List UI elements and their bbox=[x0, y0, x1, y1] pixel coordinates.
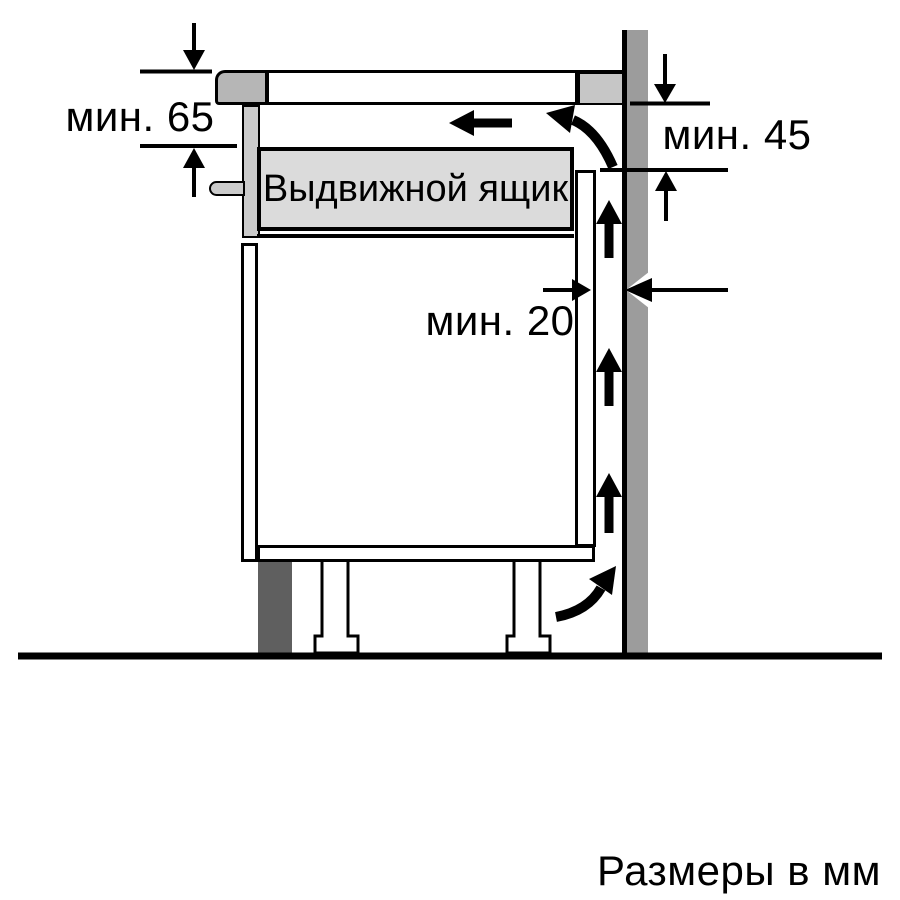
footer-note: Размеры в мм bbox=[597, 847, 881, 895]
hob-front-profile bbox=[215, 70, 268, 105]
airflow-up-arrow-icon bbox=[596, 200, 622, 258]
cabinet-back-panel bbox=[575, 170, 596, 547]
installation-diagram: Выдвижной ящик мин. 65 мин. 45 мин. 20 Р… bbox=[0, 0, 900, 900]
airflow-up-arrow-icon bbox=[596, 473, 622, 533]
worktop bbox=[266, 70, 578, 105]
cabinet-leg bbox=[507, 562, 550, 653]
dimension-arrow-down-icon bbox=[183, 50, 205, 70]
dimension-label-vent-clearance: мин. 45 bbox=[662, 111, 811, 159]
connection-tab bbox=[209, 181, 245, 196]
shelf-line bbox=[257, 234, 574, 238]
dimension-label-top-clearance: мин. 65 bbox=[65, 93, 214, 141]
drawer-box: Выдвижной ящик bbox=[257, 147, 574, 231]
cabinet-leg bbox=[315, 562, 358, 653]
drawer-label: Выдвижной ящик bbox=[263, 168, 568, 211]
wall bbox=[622, 30, 648, 653]
dimension-label-rear-gap: мин. 20 bbox=[425, 297, 574, 345]
plinth bbox=[258, 562, 292, 653]
dimension-arrow-up-icon bbox=[183, 148, 205, 168]
cabinet-bottom-panel bbox=[257, 545, 595, 562]
worktop-edge-block bbox=[578, 70, 624, 105]
airflow-left-arrow-icon bbox=[449, 110, 512, 136]
airflow-up-arrow-icon bbox=[596, 348, 622, 406]
dimension-arrow-down-icon bbox=[654, 84, 676, 103]
airflow-curve-bottom-icon bbox=[556, 566, 616, 617]
cabinet-side-panel bbox=[241, 243, 258, 562]
dimension-arrow-up-icon bbox=[655, 171, 677, 191]
